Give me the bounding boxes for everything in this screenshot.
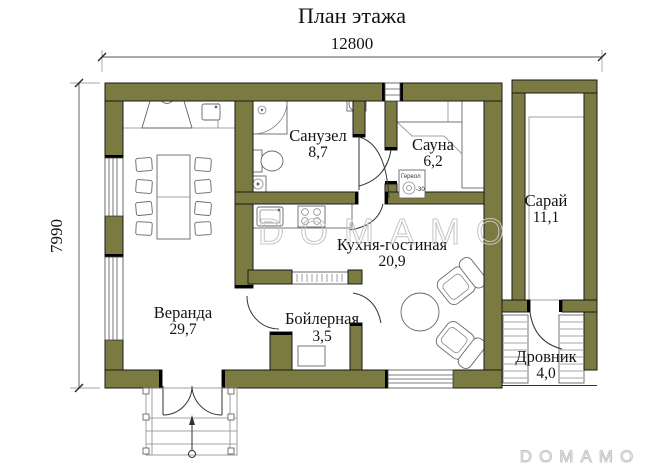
svg-text:4,0: 4,0 <box>536 365 556 382</box>
living-furniture <box>401 255 489 371</box>
svg-text:Санузел: Санузел <box>289 126 346 145</box>
entry-double-door <box>163 386 222 415</box>
coffee-table-icon <box>401 293 439 331</box>
porch-steps <box>143 388 237 458</box>
entry-arrow-icon <box>189 415 196 458</box>
room-label-saray: Сарай 11,1 <box>525 191 568 226</box>
room-label-sauna: Сауна 6,2 <box>412 135 455 170</box>
sauna-heater-label: Гереол <box>401 174 421 180</box>
sauna-door-arc <box>359 150 391 186</box>
svg-text:11,1: 11,1 <box>533 209 560 226</box>
sauna-bench-icon <box>397 101 465 122</box>
room-label-sanuzel: Санузел 8,7 <box>289 126 346 161</box>
floor-plan: Гереол -30 12800 7990 План <box>0 0 665 470</box>
corner-shower-icon <box>253 101 287 134</box>
veranda-sink-icon <box>202 104 220 120</box>
door-arc <box>247 296 279 329</box>
svg-text:Сарай: Сарай <box>525 191 568 210</box>
plan-title: План этажа <box>298 3 406 28</box>
sauna-heater-icon: Гереол -30 <box>399 170 425 198</box>
svg-text:Веранда: Веранда <box>154 303 213 322</box>
svg-text:Бойлерная: Бойлерная <box>285 309 360 328</box>
svg-text:20,9: 20,9 <box>378 253 405 270</box>
watermark-center: DOMAMO <box>258 211 520 252</box>
armchair-icon <box>432 317 488 371</box>
watermark-bottom: DOMAMO <box>520 447 640 466</box>
svg-text:Сауна: Сауна <box>412 135 455 154</box>
dining-table-icon <box>157 155 190 239</box>
sauna-heater-power: -30 <box>416 187 425 193</box>
dimension-width-value: 12800 <box>331 34 374 53</box>
svg-text:8,7: 8,7 <box>308 144 328 161</box>
woodshed-door-arc <box>530 312 562 349</box>
window <box>388 370 453 388</box>
boiler-icon <box>298 346 325 366</box>
sauna-bench-icon <box>462 101 484 188</box>
toilet-icon <box>253 150 283 172</box>
room-label-veranda: Веранда 29,7 <box>154 303 213 338</box>
room-label-boiler: Бойлерная 3,5 <box>285 309 360 345</box>
window <box>105 257 123 340</box>
window <box>105 158 123 216</box>
radiator-icon <box>292 272 348 284</box>
boiler-room-fixtures <box>298 346 325 366</box>
svg-text:29,7: 29,7 <box>169 321 196 338</box>
veranda-furniture <box>123 91 235 240</box>
vent-window <box>385 83 400 101</box>
dimension-left: 7990 <box>47 79 100 392</box>
dimension-height-value: 7990 <box>47 219 66 253</box>
svg-text:3,5: 3,5 <box>312 328 332 345</box>
dimension-top: 12800 <box>98 34 606 72</box>
svg-text:6,2: 6,2 <box>423 153 442 170</box>
floor-plan-page: Гереол -30 12800 7990 План <box>0 0 665 470</box>
svg-text:Дровник: Дровник <box>515 347 577 366</box>
armchair-icon <box>433 255 489 309</box>
